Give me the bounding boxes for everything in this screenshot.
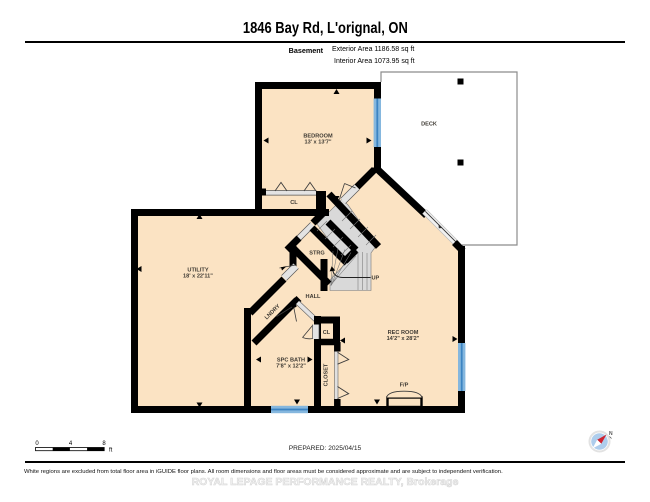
svg-text:HALL: HALL — [306, 294, 321, 300]
svg-text:UP: UP — [372, 276, 380, 282]
svg-text:18' x 22'11": 18' x 22'11" — [183, 274, 213, 280]
svg-text:DECK: DECK — [421, 122, 437, 128]
svg-text:F/P: F/P — [400, 383, 409, 389]
svg-text:7'8" x 12'2": 7'8" x 12'2" — [276, 364, 306, 370]
svg-text:STRG: STRG — [309, 251, 325, 257]
svg-text:CLOSET: CLOSET — [324, 363, 330, 386]
svg-text:14'2" x 28'2": 14'2" x 28'2" — [387, 336, 420, 342]
svg-text:CL: CL — [323, 330, 331, 336]
svg-text:CL: CL — [290, 200, 298, 206]
svg-text:13' x 13'7": 13' x 13'7" — [304, 140, 331, 146]
svg-text:N: N — [609, 431, 613, 437]
